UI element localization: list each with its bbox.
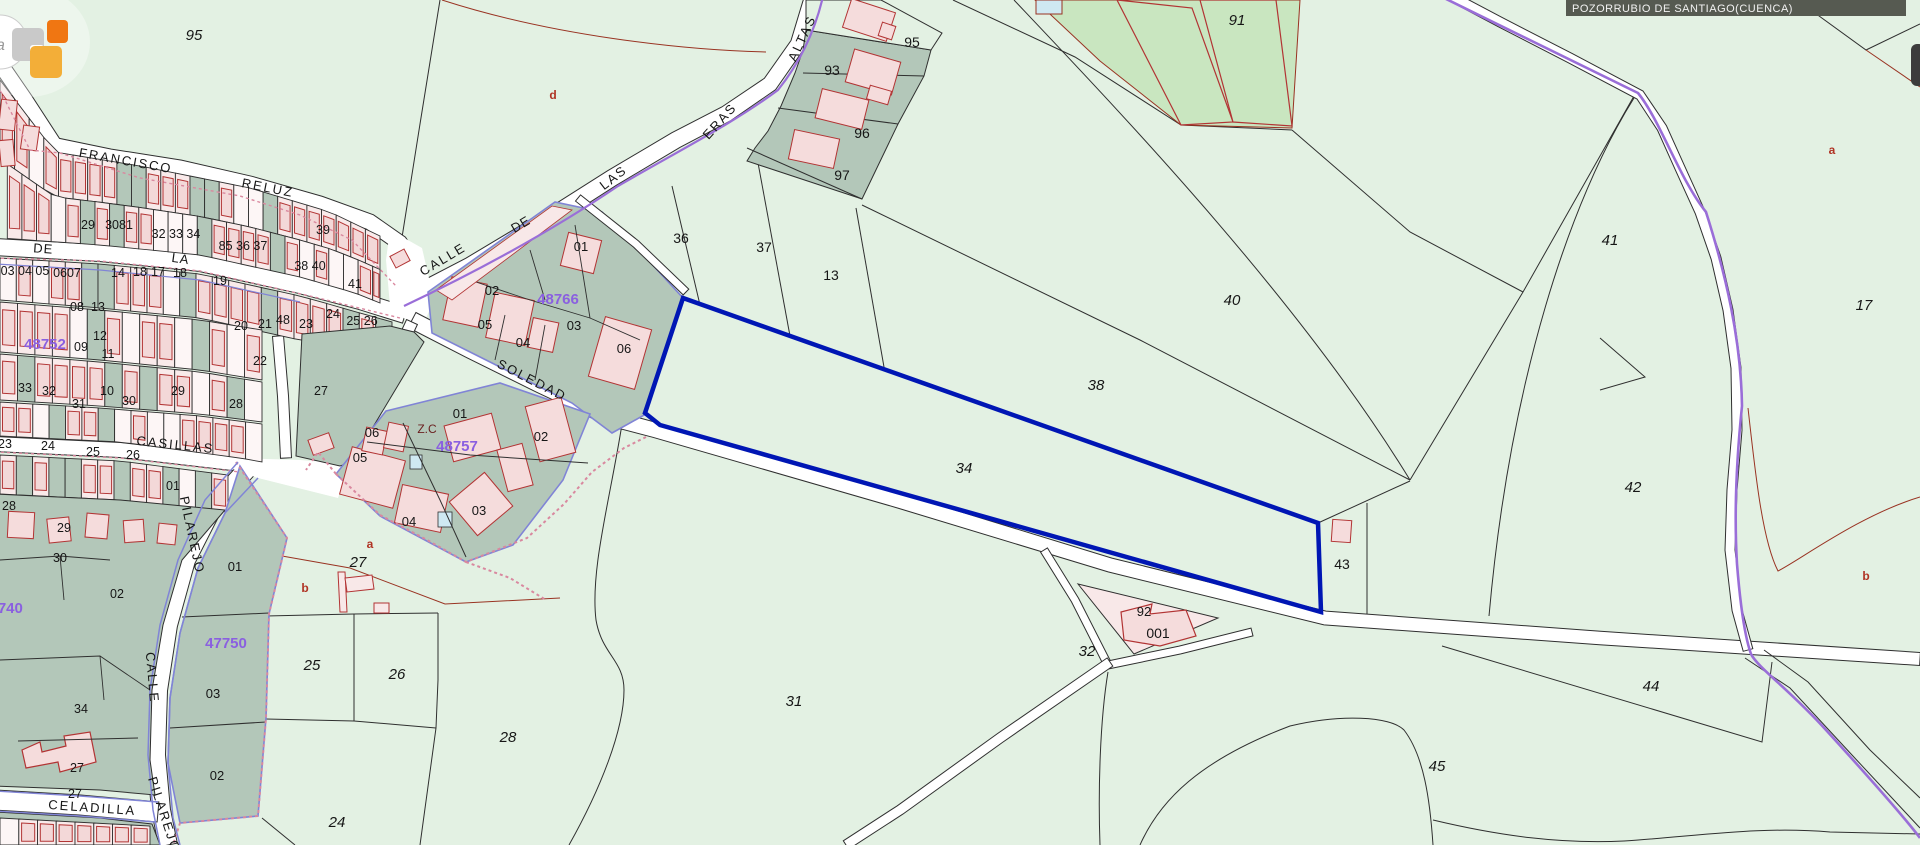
- svg-text:48766: 48766: [537, 291, 579, 308]
- svg-text:93: 93: [824, 62, 840, 78]
- svg-text:43: 43: [1334, 556, 1350, 572]
- svg-text:19: 19: [213, 274, 227, 288]
- svg-text:01: 01: [166, 479, 180, 493]
- svg-text:29: 29: [81, 218, 95, 232]
- svg-text:14: 14: [111, 266, 125, 280]
- svg-text:17: 17: [1856, 297, 1873, 314]
- svg-text:001: 001: [1146, 625, 1170, 641]
- svg-text:21: 21: [258, 317, 272, 331]
- svg-text:3081: 3081: [105, 218, 133, 232]
- svg-text:03 04 05: 03 04 05: [1, 264, 50, 278]
- svg-text:41: 41: [348, 277, 362, 291]
- svg-text:17: 17: [151, 265, 165, 279]
- svg-text:92: 92: [1137, 604, 1151, 619]
- svg-text:32: 32: [1079, 643, 1096, 660]
- svg-text:Z.C: Z.C: [417, 422, 437, 436]
- svg-text:10: 10: [100, 384, 114, 398]
- svg-text:31: 31: [786, 693, 803, 710]
- svg-text:28: 28: [2, 499, 16, 513]
- svg-text:03: 03: [206, 686, 220, 701]
- svg-text:11: 11: [102, 347, 115, 361]
- svg-text:26: 26: [126, 448, 140, 462]
- svg-text:38: 38: [1088, 377, 1105, 394]
- svg-text:45: 45: [1429, 758, 1446, 775]
- svg-text:18: 18: [133, 265, 147, 279]
- svg-text:95: 95: [186, 27, 203, 44]
- svg-text:32: 32: [42, 384, 56, 398]
- svg-text:34: 34: [956, 460, 973, 477]
- svg-text:23: 23: [299, 317, 313, 331]
- svg-text:03: 03: [472, 503, 486, 518]
- svg-text:25 26: 25 26: [346, 314, 377, 328]
- svg-text:24: 24: [326, 307, 340, 321]
- svg-text:a: a: [0, 37, 5, 54]
- svg-text:27: 27: [70, 761, 84, 775]
- svg-text:12: 12: [93, 329, 107, 343]
- svg-text:LA: LA: [171, 250, 191, 267]
- svg-text:42: 42: [1625, 479, 1642, 496]
- svg-text:27: 27: [349, 554, 367, 571]
- svg-text:DE: DE: [33, 240, 54, 256]
- svg-text:02: 02: [110, 587, 124, 601]
- svg-text:24: 24: [41, 439, 55, 453]
- svg-text:91: 91: [1229, 12, 1246, 29]
- svg-text:32 33 34: 32 33 34: [152, 227, 201, 241]
- svg-text:18: 18: [173, 266, 187, 280]
- svg-text:a: a: [1829, 143, 1836, 157]
- svg-text:04: 04: [402, 514, 416, 529]
- svg-text:44: 44: [1643, 678, 1660, 695]
- svg-text:30: 30: [122, 394, 136, 408]
- svg-text:01: 01: [453, 406, 467, 421]
- svg-text:05: 05: [353, 450, 367, 465]
- svg-text:05: 05: [478, 317, 492, 332]
- svg-text:06: 06: [617, 341, 631, 356]
- svg-text:29: 29: [57, 521, 71, 535]
- svg-text:38 40: 38 40: [294, 259, 325, 273]
- svg-text:40: 40: [1224, 292, 1241, 309]
- svg-text:22: 22: [253, 354, 267, 368]
- svg-text:39: 39: [316, 223, 330, 237]
- svg-text:0607: 0607: [53, 266, 81, 280]
- svg-text:37: 37: [756, 239, 772, 255]
- svg-text:08: 08: [70, 300, 84, 314]
- svg-text:03: 03: [567, 318, 581, 333]
- svg-text:02: 02: [210, 768, 224, 783]
- svg-text:95: 95: [904, 34, 920, 50]
- svg-text:20: 20: [234, 319, 248, 333]
- svg-text:a: a: [367, 537, 374, 551]
- svg-text:47750: 47750: [205, 635, 247, 652]
- svg-text:d: d: [549, 88, 556, 102]
- svg-text:01: 01: [228, 559, 242, 574]
- svg-text:06: 06: [365, 425, 379, 440]
- svg-text:85 36 37: 85 36 37: [219, 239, 268, 253]
- svg-text:34: 34: [74, 702, 88, 716]
- svg-text:02: 02: [485, 283, 499, 298]
- svg-text:04: 04: [516, 335, 530, 350]
- svg-text:27: 27: [68, 787, 82, 801]
- svg-text:23: 23: [0, 437, 12, 451]
- svg-text:36: 36: [673, 230, 689, 246]
- svg-text:25: 25: [86, 445, 100, 459]
- svg-text:27: 27: [314, 384, 328, 398]
- svg-text:48757: 48757: [436, 438, 478, 455]
- svg-text:02: 02: [534, 429, 548, 444]
- svg-text:b: b: [301, 581, 308, 595]
- svg-text:POZORRUBIO DE SANTIAGO(CUENCA): POZORRUBIO DE SANTIAGO(CUENCA): [1572, 3, 1793, 15]
- svg-text:b: b: [1862, 569, 1869, 583]
- svg-text:09: 09: [74, 340, 88, 354]
- svg-text:33: 33: [18, 381, 32, 395]
- svg-text:47740: 47740: [0, 600, 23, 617]
- svg-text:13: 13: [823, 267, 839, 283]
- svg-text:48752: 48752: [24, 336, 66, 353]
- svg-text:29: 29: [171, 384, 185, 398]
- svg-text:25: 25: [303, 657, 321, 674]
- svg-text:48: 48: [276, 313, 290, 327]
- svg-text:31: 31: [72, 397, 86, 411]
- svg-text:26: 26: [388, 666, 406, 683]
- svg-text:28: 28: [229, 397, 243, 411]
- svg-text:28: 28: [499, 729, 517, 746]
- svg-text:41: 41: [1602, 232, 1619, 249]
- svg-text:30: 30: [53, 551, 67, 565]
- svg-text:13: 13: [91, 300, 105, 314]
- svg-text:97: 97: [834, 167, 850, 183]
- svg-text:24: 24: [328, 814, 346, 831]
- svg-text:96: 96: [854, 125, 870, 141]
- svg-text:01: 01: [574, 239, 588, 254]
